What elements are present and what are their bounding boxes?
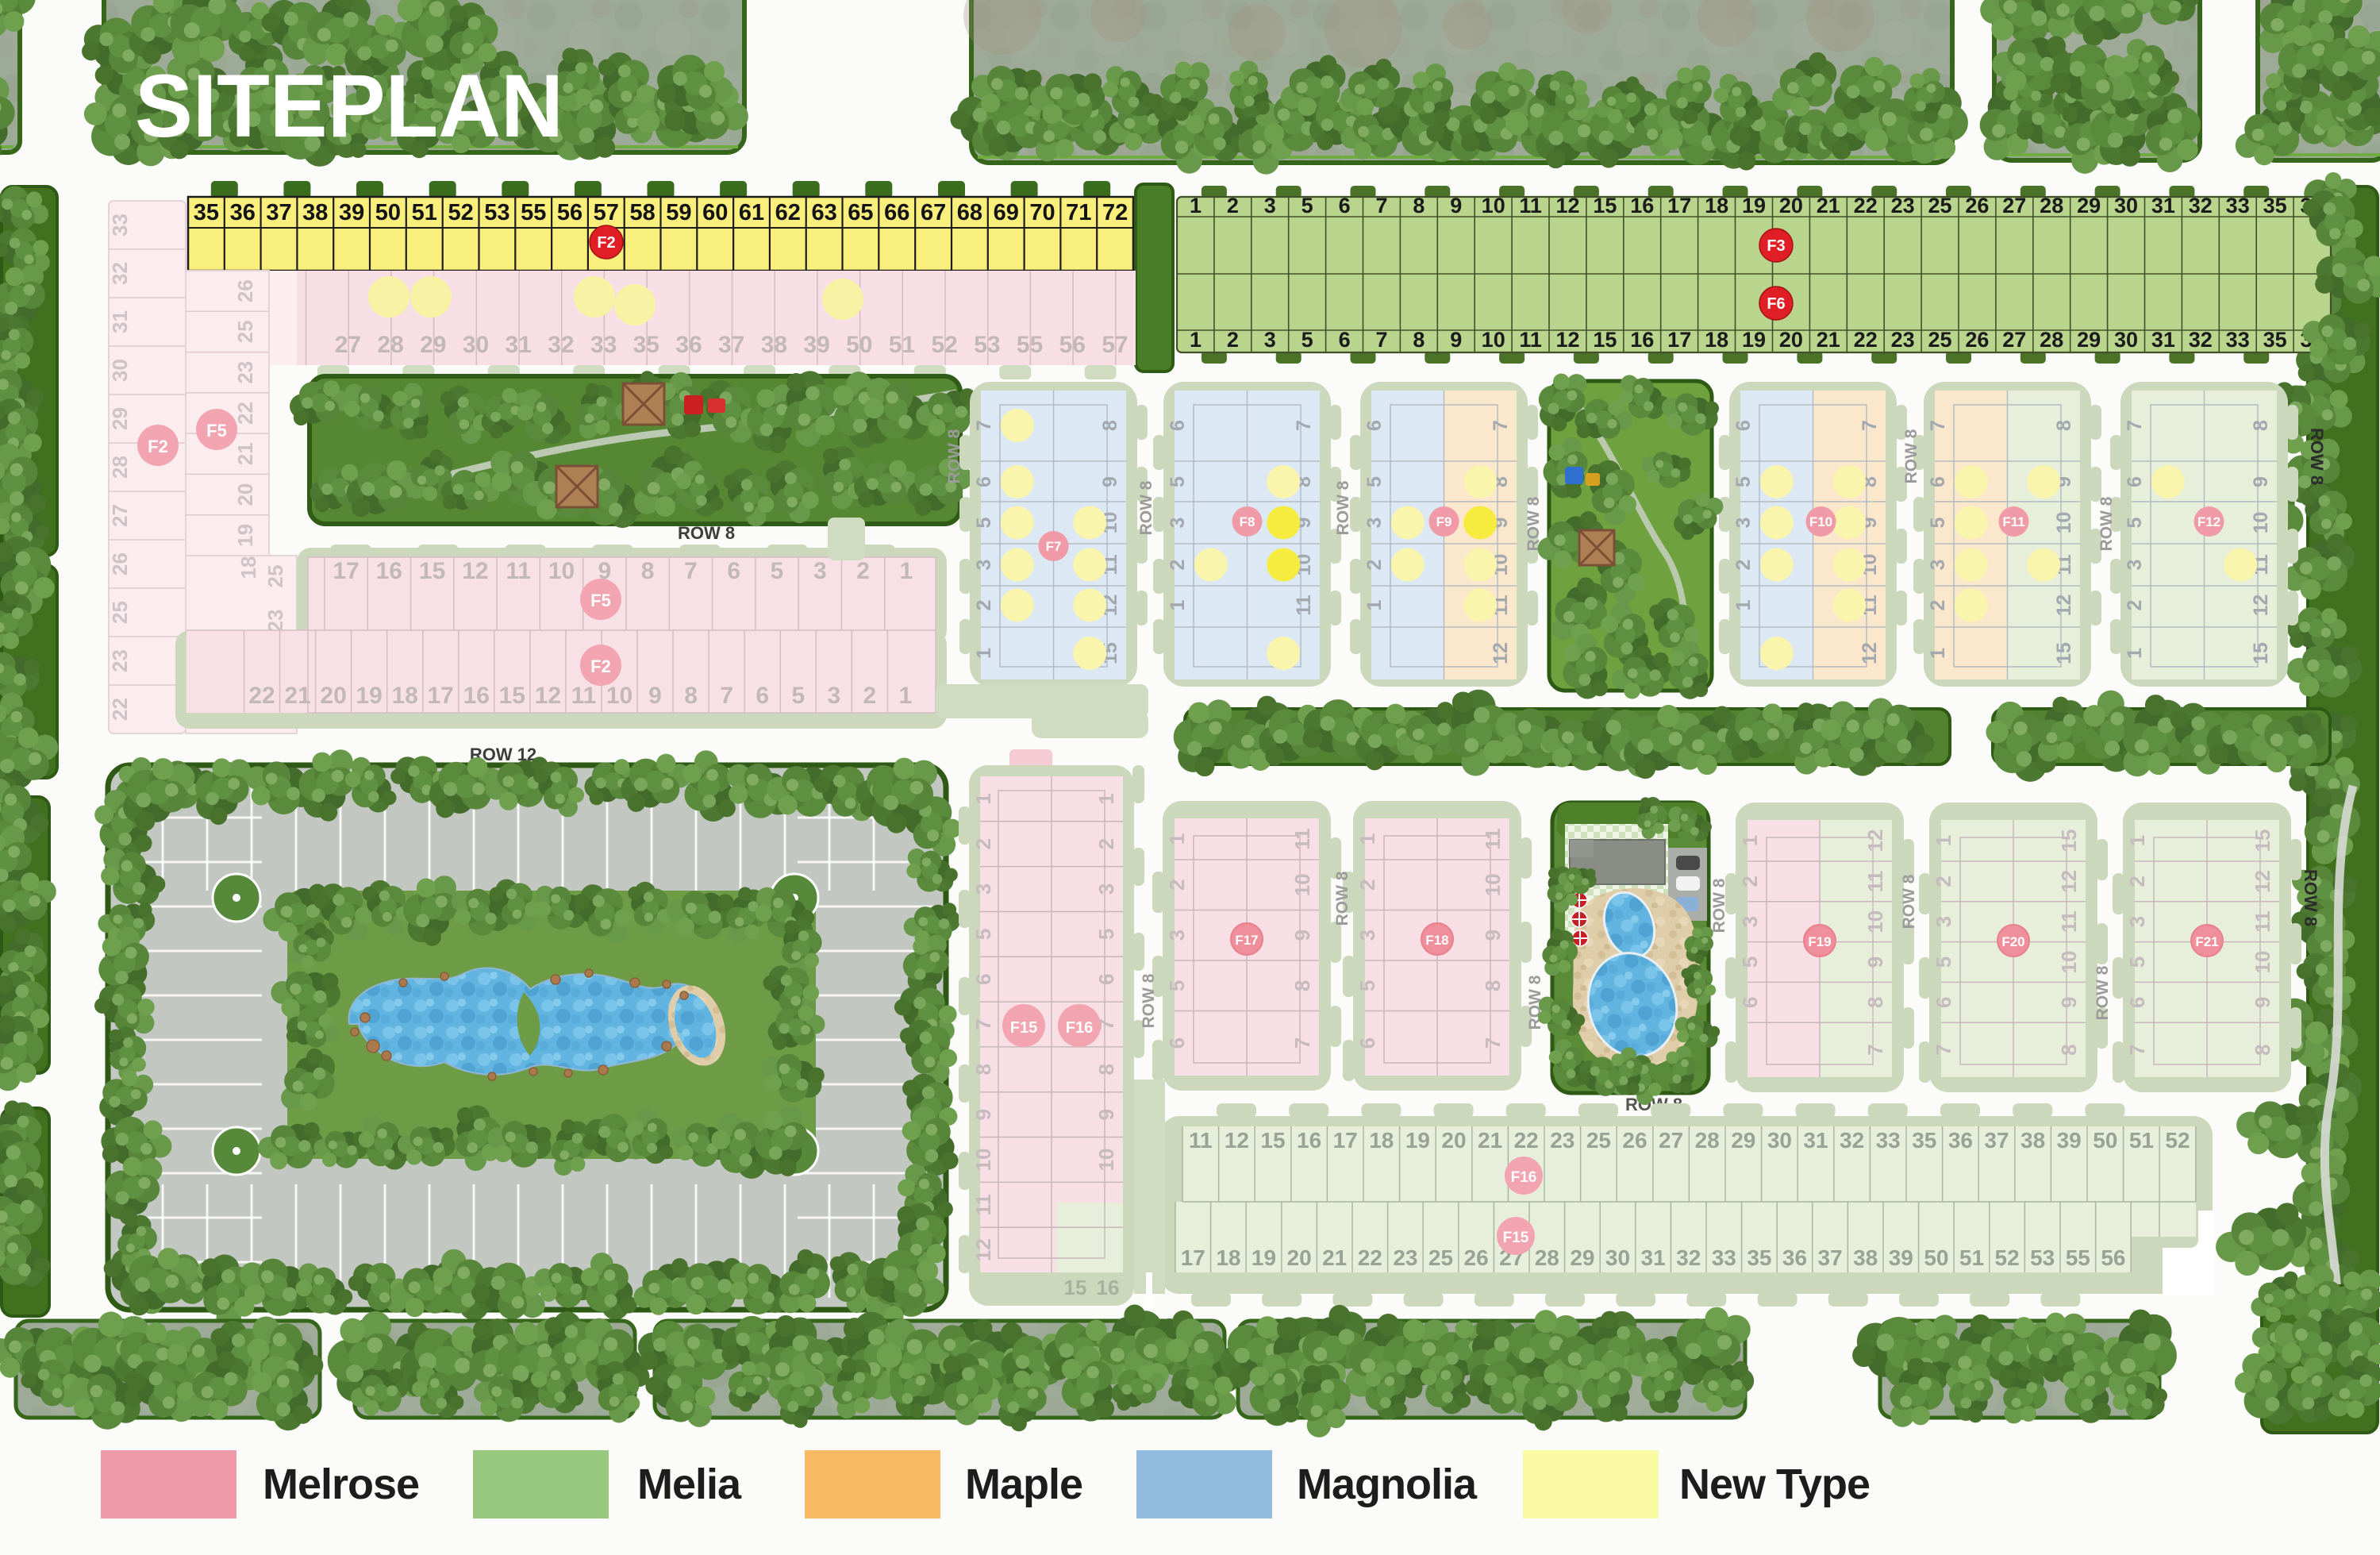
- svg-text:7: 7: [720, 683, 733, 709]
- svg-text:31: 31: [506, 332, 532, 358]
- svg-text:36: 36: [230, 200, 256, 225]
- svg-text:15: 15: [1064, 1276, 1087, 1299]
- svg-text:50: 50: [375, 200, 401, 225]
- svg-text:26: 26: [1965, 328, 1989, 352]
- svg-text:22: 22: [1358, 1245, 1382, 1270]
- svg-text:6: 6: [1732, 420, 1755, 431]
- svg-text:32: 32: [2189, 328, 2213, 352]
- svg-text:21: 21: [1478, 1128, 1502, 1153]
- svg-text:2: 2: [1227, 194, 1239, 217]
- svg-text:3: 3: [1738, 916, 1762, 927]
- svg-text:29: 29: [420, 332, 446, 358]
- svg-text:9: 9: [971, 1109, 995, 1120]
- svg-text:66: 66: [884, 200, 909, 225]
- svg-text:2: 2: [1732, 560, 1755, 571]
- svg-text:1: 1: [973, 648, 995, 659]
- svg-text:7: 7: [971, 1018, 995, 1030]
- svg-text:12: 12: [2250, 595, 2272, 617]
- svg-text:55: 55: [521, 200, 546, 225]
- svg-text:1: 1: [1190, 194, 1202, 217]
- svg-text:5: 5: [1738, 956, 1762, 968]
- svg-text:25: 25: [1928, 328, 1951, 352]
- svg-text:11: 11: [971, 1194, 995, 1216]
- svg-text:3: 3: [971, 883, 995, 895]
- svg-text:18: 18: [1705, 328, 1728, 352]
- svg-text:23: 23: [1891, 328, 1915, 352]
- svg-text:29: 29: [1731, 1128, 1755, 1153]
- svg-text:33: 33: [2226, 194, 2250, 217]
- svg-text:21: 21: [1322, 1245, 1347, 1270]
- svg-text:55: 55: [2066, 1245, 2090, 1270]
- svg-text:5: 5: [2125, 956, 2149, 968]
- svg-text:6: 6: [1927, 476, 1949, 487]
- svg-text:16: 16: [1297, 1128, 1321, 1153]
- svg-text:6: 6: [756, 683, 769, 709]
- svg-text:F8: F8: [1240, 514, 1255, 529]
- svg-text:31: 31: [2151, 328, 2175, 352]
- svg-text:30: 30: [2114, 328, 2138, 352]
- svg-text:25: 25: [1586, 1128, 1611, 1153]
- svg-text:1: 1: [899, 683, 913, 709]
- svg-text:16: 16: [1630, 328, 1654, 352]
- svg-text:7: 7: [1290, 1037, 1314, 1049]
- svg-text:3: 3: [1932, 916, 1955, 927]
- svg-text:22: 22: [1854, 328, 1878, 352]
- svg-text:50: 50: [2093, 1128, 2117, 1153]
- svg-text:36: 36: [675, 332, 702, 358]
- svg-text:2: 2: [1932, 876, 1955, 887]
- svg-text:5: 5: [2124, 517, 2146, 528]
- svg-text:51: 51: [2129, 1128, 2154, 1153]
- svg-text:18: 18: [1369, 1128, 1394, 1153]
- svg-text:5: 5: [1932, 956, 1955, 968]
- svg-text:1: 1: [1927, 648, 1949, 659]
- svg-text:51: 51: [889, 332, 915, 358]
- svg-text:15: 15: [1593, 194, 1617, 217]
- svg-text:59: 59: [666, 200, 691, 225]
- svg-text:10: 10: [2057, 951, 2081, 974]
- svg-text:8: 8: [1481, 980, 1505, 991]
- svg-text:5: 5: [973, 517, 995, 528]
- svg-text:F2: F2: [597, 234, 615, 252]
- svg-text:12: 12: [1490, 642, 1512, 664]
- svg-text:3: 3: [1264, 328, 1276, 352]
- svg-text:6: 6: [1339, 194, 1351, 217]
- svg-text:1: 1: [2125, 835, 2149, 846]
- svg-text:F19: F19: [1808, 934, 1831, 949]
- svg-text:35: 35: [2263, 328, 2287, 352]
- svg-text:15: 15: [1593, 328, 1617, 352]
- svg-text:3: 3: [813, 558, 827, 584]
- svg-text:31: 31: [1803, 1128, 1828, 1153]
- svg-text:9: 9: [2251, 997, 2274, 1008]
- svg-text:23: 23: [233, 361, 257, 384]
- svg-text:17: 17: [1333, 1128, 1358, 1153]
- svg-text:ROW 8: ROW 8: [1140, 973, 1158, 1028]
- svg-text:27: 27: [108, 504, 132, 527]
- svg-text:28: 28: [2040, 328, 2063, 352]
- svg-text:9: 9: [1450, 194, 1462, 217]
- svg-text:9: 9: [1099, 476, 1121, 487]
- svg-text:30: 30: [1605, 1245, 1630, 1270]
- svg-text:22: 22: [1854, 194, 1878, 217]
- svg-text:2: 2: [1363, 560, 1386, 571]
- svg-text:11: 11: [571, 683, 597, 709]
- svg-text:32: 32: [1840, 1128, 1864, 1153]
- svg-text:3: 3: [1165, 930, 1189, 941]
- svg-text:29: 29: [2077, 328, 2101, 352]
- svg-text:22: 22: [108, 698, 132, 721]
- svg-text:25: 25: [233, 320, 257, 343]
- svg-text:5: 5: [791, 683, 805, 709]
- svg-text:35: 35: [633, 332, 659, 358]
- svg-text:33: 33: [590, 332, 617, 358]
- svg-text:Melia: Melia: [637, 1461, 742, 1508]
- svg-text:6: 6: [1355, 1037, 1379, 1049]
- svg-text:52: 52: [932, 332, 958, 358]
- svg-text:ROW 8: ROW 8: [1137, 480, 1155, 535]
- svg-text:35: 35: [194, 200, 219, 225]
- svg-text:6: 6: [727, 558, 740, 584]
- svg-text:18: 18: [236, 556, 260, 579]
- svg-text:21: 21: [284, 683, 310, 709]
- svg-text:37: 37: [1984, 1128, 2009, 1153]
- svg-text:2: 2: [1738, 876, 1762, 887]
- svg-text:30: 30: [108, 359, 132, 382]
- svg-text:19: 19: [1405, 1128, 1430, 1153]
- svg-text:17: 17: [333, 558, 359, 584]
- svg-text:8: 8: [1290, 980, 1314, 991]
- svg-text:ROW 8: ROW 8: [678, 523, 735, 543]
- svg-text:5: 5: [1732, 476, 1755, 487]
- svg-text:20: 20: [1779, 194, 1803, 217]
- svg-text:6: 6: [2124, 476, 2146, 487]
- svg-text:8: 8: [641, 558, 655, 584]
- svg-text:55: 55: [1017, 332, 1043, 358]
- svg-text:3: 3: [1167, 518, 1189, 529]
- svg-text:7: 7: [1859, 420, 1881, 431]
- svg-text:9: 9: [1094, 1109, 1118, 1120]
- svg-text:29: 29: [2077, 194, 2101, 217]
- svg-text:50: 50: [1924, 1245, 1948, 1270]
- svg-text:71: 71: [1066, 200, 1091, 225]
- svg-text:F2: F2: [148, 437, 168, 456]
- svg-text:27: 27: [2002, 328, 2026, 352]
- svg-text:62: 62: [775, 200, 801, 225]
- svg-text:16: 16: [1097, 1276, 1120, 1299]
- svg-text:23: 23: [108, 649, 132, 672]
- svg-text:F2: F2: [590, 656, 611, 676]
- svg-text:10: 10: [548, 558, 575, 584]
- svg-text:51: 51: [412, 200, 437, 225]
- svg-text:7: 7: [1490, 420, 1512, 431]
- svg-text:12: 12: [1859, 642, 1881, 664]
- svg-text:50: 50: [846, 332, 872, 358]
- svg-text:16: 16: [376, 558, 402, 584]
- svg-text:12: 12: [2053, 595, 2075, 617]
- svg-text:F16: F16: [1066, 1019, 1093, 1037]
- svg-text:15: 15: [2057, 829, 2081, 853]
- svg-text:5: 5: [1167, 476, 1189, 487]
- svg-text:8: 8: [1413, 328, 1425, 352]
- svg-text:F12: F12: [2197, 514, 2220, 529]
- svg-text:11: 11: [1481, 828, 1505, 850]
- svg-text:15: 15: [419, 558, 445, 584]
- svg-text:10: 10: [2251, 951, 2274, 974]
- svg-text:8: 8: [1094, 1064, 1118, 1075]
- svg-text:Melrose: Melrose: [263, 1461, 419, 1508]
- svg-text:38: 38: [2021, 1128, 2045, 1153]
- svg-text:10: 10: [1482, 194, 1505, 217]
- svg-text:SITEPLAN: SITEPLAN: [135, 56, 563, 156]
- svg-text:7: 7: [1375, 194, 1387, 217]
- svg-text:8: 8: [684, 683, 698, 709]
- svg-text:61: 61: [739, 200, 764, 225]
- svg-text:2: 2: [863, 683, 876, 709]
- svg-text:33: 33: [108, 214, 132, 237]
- svg-text:1: 1: [1732, 599, 1755, 610]
- svg-text:10: 10: [606, 683, 632, 709]
- svg-text:22: 22: [248, 683, 275, 709]
- svg-text:26: 26: [1622, 1128, 1647, 1153]
- svg-text:6: 6: [1363, 420, 1386, 431]
- svg-text:1: 1: [971, 793, 995, 804]
- svg-text:2: 2: [1165, 879, 1189, 891]
- svg-text:51: 51: [1959, 1245, 1984, 1270]
- svg-text:F15: F15: [1010, 1019, 1037, 1037]
- svg-text:39: 39: [339, 200, 364, 225]
- svg-text:8: 8: [2057, 1044, 2081, 1055]
- svg-text:15: 15: [499, 683, 525, 709]
- svg-text:6: 6: [973, 476, 995, 487]
- svg-text:6: 6: [1167, 420, 1189, 431]
- svg-text:9: 9: [648, 683, 662, 709]
- svg-text:15: 15: [2250, 642, 2272, 664]
- svg-text:1: 1: [1932, 835, 1955, 846]
- svg-text:26: 26: [233, 279, 257, 302]
- svg-text:3: 3: [827, 683, 840, 709]
- svg-text:F5: F5: [590, 591, 611, 610]
- svg-text:7: 7: [1481, 1037, 1505, 1049]
- svg-text:ROW 8: ROW 8: [2301, 869, 2320, 926]
- svg-text:12: 12: [1225, 1128, 1249, 1153]
- svg-text:1: 1: [1190, 328, 1202, 352]
- svg-text:8: 8: [2250, 420, 2272, 431]
- svg-text:23: 23: [263, 610, 287, 633]
- svg-text:3: 3: [1927, 560, 1949, 571]
- svg-text:1: 1: [1165, 833, 1189, 845]
- svg-text:37: 37: [266, 200, 291, 225]
- svg-text:18: 18: [392, 683, 418, 709]
- svg-text:2: 2: [2124, 600, 2146, 611]
- svg-text:16: 16: [1630, 194, 1654, 217]
- svg-text:New Type: New Type: [1679, 1461, 1870, 1508]
- svg-text:57: 57: [594, 200, 619, 225]
- svg-text:5: 5: [1363, 476, 1386, 487]
- svg-text:6: 6: [2125, 997, 2149, 1008]
- svg-text:56: 56: [1059, 332, 1086, 358]
- svg-text:3: 3: [1264, 194, 1276, 217]
- svg-text:56: 56: [557, 200, 583, 225]
- svg-text:1: 1: [1094, 793, 1118, 804]
- svg-text:7: 7: [684, 558, 698, 584]
- svg-text:19: 19: [356, 683, 382, 709]
- svg-text:12: 12: [2057, 870, 2081, 893]
- svg-text:35: 35: [2263, 194, 2287, 217]
- svg-text:ROW 8: ROW 8: [1900, 874, 1918, 929]
- svg-text:26: 26: [108, 552, 132, 575]
- svg-text:3: 3: [1732, 518, 1755, 529]
- svg-text:69: 69: [994, 200, 1019, 225]
- svg-text:11: 11: [1519, 194, 1542, 217]
- svg-text:F6: F6: [1767, 295, 1785, 313]
- svg-text:F9: F9: [1436, 514, 1452, 529]
- svg-text:5: 5: [1302, 194, 1313, 217]
- svg-text:15: 15: [1260, 1128, 1285, 1153]
- svg-text:9: 9: [2057, 997, 2081, 1008]
- svg-text:3: 3: [973, 560, 995, 571]
- svg-text:11: 11: [1519, 328, 1542, 352]
- svg-text:7: 7: [1927, 420, 1949, 431]
- svg-text:6: 6: [1738, 997, 1762, 1008]
- svg-text:33: 33: [1876, 1128, 1901, 1153]
- svg-text:2: 2: [973, 600, 995, 611]
- svg-text:53: 53: [2030, 1245, 2055, 1270]
- svg-text:28: 28: [377, 332, 403, 358]
- svg-text:38: 38: [1853, 1245, 1878, 1270]
- svg-text:2: 2: [1227, 328, 1239, 352]
- svg-text:11: 11: [1863, 871, 1887, 893]
- svg-text:38: 38: [302, 200, 328, 225]
- svg-text:23: 23: [1550, 1128, 1574, 1153]
- svg-text:9: 9: [1863, 956, 1887, 968]
- svg-text:ROW 8: ROW 8: [2094, 965, 2112, 1020]
- svg-text:58: 58: [629, 200, 655, 225]
- svg-text:ROW 8: ROW 8: [1333, 871, 1351, 926]
- svg-text:10: 10: [971, 1149, 995, 1172]
- svg-text:29: 29: [1570, 1245, 1594, 1270]
- svg-text:19: 19: [1742, 328, 1766, 352]
- svg-text:56: 56: [2101, 1245, 2125, 1270]
- svg-text:5: 5: [771, 558, 784, 584]
- svg-text:11: 11: [2057, 910, 2081, 933]
- svg-text:35: 35: [1747, 1245, 1771, 1270]
- svg-text:22: 22: [233, 402, 257, 425]
- svg-text:9: 9: [1481, 930, 1505, 941]
- svg-text:38: 38: [761, 332, 787, 358]
- svg-text:23: 23: [1393, 1245, 1417, 1270]
- svg-text:7: 7: [1375, 328, 1387, 352]
- svg-text:7: 7: [2124, 420, 2146, 431]
- svg-text:F20: F20: [2001, 934, 2024, 949]
- svg-text:28: 28: [2040, 194, 2063, 217]
- svg-text:39: 39: [803, 332, 829, 358]
- svg-text:60: 60: [702, 200, 728, 225]
- svg-text:30: 30: [1767, 1128, 1792, 1153]
- svg-text:39: 39: [2057, 1128, 2082, 1153]
- svg-text:37: 37: [1818, 1245, 1843, 1270]
- svg-text:17: 17: [1181, 1245, 1205, 1270]
- svg-text:19: 19: [1252, 1245, 1276, 1270]
- svg-text:52: 52: [2165, 1128, 2190, 1153]
- svg-text:ROW 8: ROW 8: [1902, 429, 1921, 483]
- svg-text:33: 33: [2226, 328, 2250, 352]
- svg-text:F10: F10: [1809, 514, 1832, 529]
- svg-text:31: 31: [108, 310, 132, 333]
- svg-text:11: 11: [2251, 910, 2274, 933]
- svg-text:21: 21: [1817, 194, 1840, 217]
- svg-text:33: 33: [1712, 1245, 1736, 1270]
- svg-text:1: 1: [1167, 599, 1189, 610]
- svg-text:31: 31: [1641, 1245, 1666, 1270]
- svg-text:72: 72: [1102, 200, 1128, 225]
- svg-text:11: 11: [1189, 1128, 1213, 1153]
- svg-text:10: 10: [1481, 873, 1505, 896]
- svg-text:2: 2: [1167, 560, 1189, 571]
- svg-text:F17: F17: [1235, 933, 1258, 948]
- svg-text:F11: F11: [2002, 514, 2024, 529]
- svg-text:52: 52: [1995, 1245, 2020, 1270]
- svg-text:36: 36: [1948, 1128, 1973, 1153]
- svg-text:8: 8: [2053, 420, 2075, 431]
- svg-text:1: 1: [1363, 599, 1386, 610]
- svg-text:ROW 8: ROW 8: [945, 429, 963, 483]
- svg-text:6: 6: [1339, 328, 1351, 352]
- svg-text:7: 7: [2125, 1044, 2149, 1055]
- svg-text:3: 3: [1355, 930, 1379, 941]
- svg-text:20: 20: [1287, 1245, 1312, 1270]
- svg-text:20: 20: [1779, 328, 1803, 352]
- svg-text:28: 28: [1535, 1245, 1559, 1270]
- svg-text:21: 21: [1817, 328, 1840, 352]
- svg-text:20: 20: [233, 483, 257, 506]
- svg-text:11: 11: [506, 558, 531, 584]
- svg-text:18: 18: [1216, 1245, 1240, 1270]
- svg-text:3: 3: [2124, 560, 2146, 571]
- svg-text:Magnolia: Magnolia: [1297, 1461, 1478, 1508]
- svg-text:63: 63: [811, 200, 836, 225]
- svg-text:9: 9: [1290, 930, 1314, 941]
- svg-text:10: 10: [2250, 512, 2272, 534]
- svg-text:ROW 8: ROW 8: [2097, 496, 2116, 551]
- svg-text:57: 57: [1102, 332, 1128, 358]
- svg-text:5: 5: [1094, 929, 1118, 940]
- svg-text:28: 28: [108, 456, 132, 479]
- svg-text:32: 32: [1676, 1245, 1701, 1270]
- svg-text:12: 12: [1863, 829, 1887, 853]
- svg-text:9: 9: [1450, 328, 1462, 352]
- svg-text:12: 12: [535, 683, 561, 709]
- svg-text:53: 53: [484, 200, 509, 225]
- svg-text:53: 53: [974, 332, 1000, 358]
- svg-text:19: 19: [1742, 194, 1766, 217]
- svg-text:15: 15: [2053, 642, 2075, 664]
- svg-text:8: 8: [2251, 1044, 2274, 1055]
- svg-text:F3: F3: [1767, 237, 1785, 255]
- svg-text:32: 32: [2189, 194, 2213, 217]
- svg-text:2: 2: [1355, 879, 1379, 891]
- svg-text:26: 26: [1965, 194, 1989, 217]
- svg-text:7: 7: [1293, 420, 1315, 431]
- svg-text:Maple: Maple: [965, 1461, 1082, 1508]
- svg-text:31: 31: [2151, 194, 2175, 217]
- svg-text:ROW 8: ROW 8: [1710, 878, 1728, 933]
- svg-text:27: 27: [1659, 1128, 1683, 1153]
- svg-text:5: 5: [1302, 328, 1313, 352]
- svg-text:10: 10: [1863, 910, 1887, 933]
- svg-text:19: 19: [233, 524, 257, 547]
- svg-text:36: 36: [1782, 1245, 1807, 1270]
